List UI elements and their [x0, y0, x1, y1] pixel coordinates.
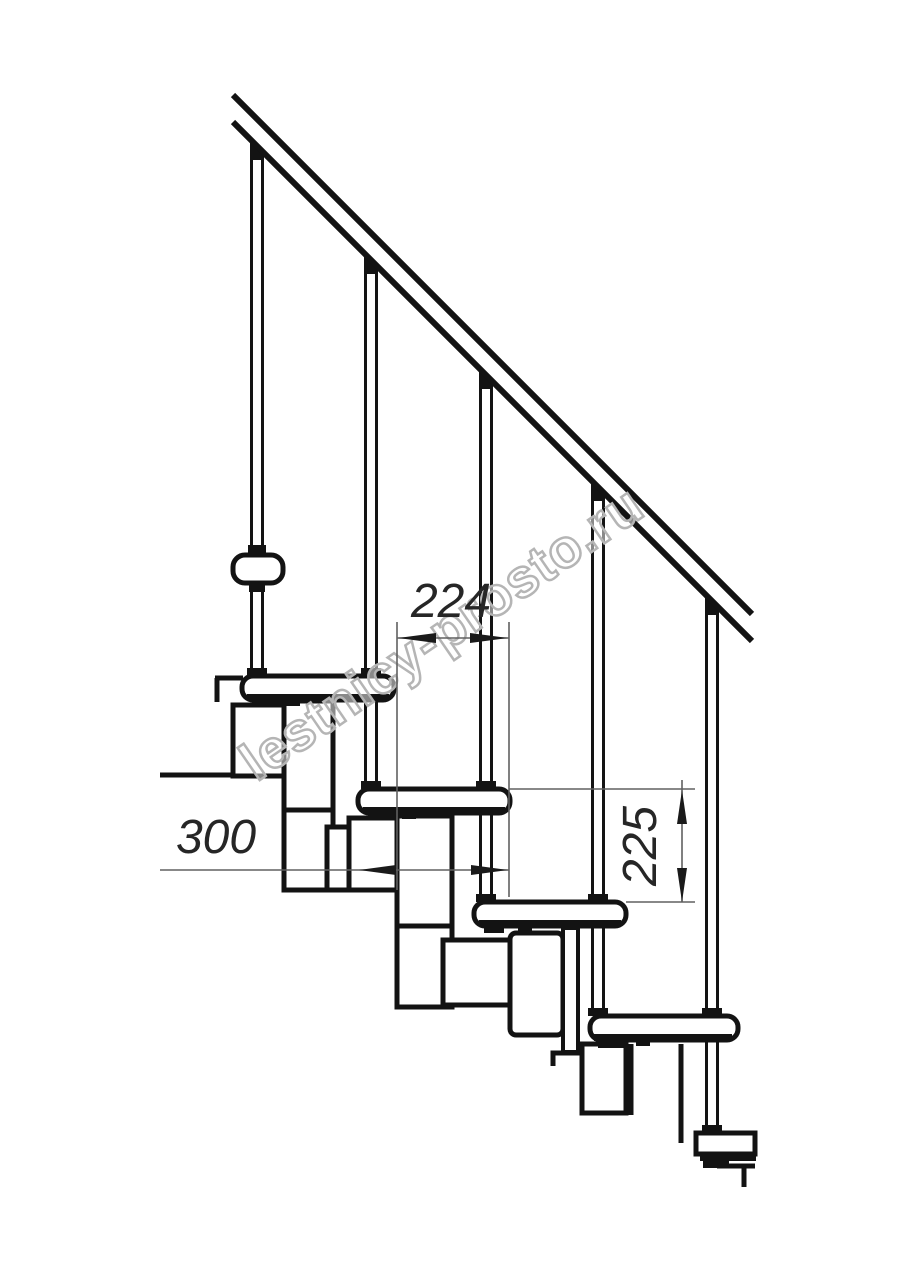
arrow-down	[677, 868, 687, 902]
baluster-1	[252, 158, 263, 676]
bottom-support-band	[700, 1152, 756, 1161]
module-2-body	[443, 940, 517, 1005]
baluster-5	[707, 613, 718, 1133]
module-4	[582, 1044, 681, 1143]
watermark: lestnicy-prosto.ru	[229, 474, 654, 792]
drawing-page: lestnicy-prosto.ru 224 300 225	[0, 0, 914, 1280]
baluster-5-foot	[702, 1125, 722, 1133]
wall-bracket-collar-top	[248, 545, 266, 555]
baluster-5-collar	[702, 1008, 722, 1016]
tread-4-underside	[594, 1034, 732, 1048]
wall-bracket	[233, 545, 283, 592]
dimension-step-run-label: 224	[410, 575, 491, 628]
module-3-tube	[563, 928, 578, 1052]
baluster-4	[593, 499, 604, 1016]
baluster-3	[481, 387, 492, 902]
dimension-step-rise-label: 225	[614, 806, 667, 887]
watermark-text: lestnicy-prosto.ru	[229, 474, 654, 792]
arrow-up	[677, 790, 687, 824]
landing-corner	[215, 678, 243, 702]
bottom-support-hook	[717, 1166, 755, 1187]
dimension-tread-depth-label: 300	[176, 811, 256, 864]
baluster-4-foot	[588, 1008, 608, 1016]
baluster-2-foot	[361, 781, 381, 789]
module-4-plate	[582, 1044, 626, 1113]
staircase-technical-drawing: lestnicy-prosto.ru 224 300 225	[0, 0, 914, 1280]
module-3-plate	[510, 933, 563, 1035]
bottom-support-block	[696, 1133, 755, 1154]
baluster-3-collar	[476, 781, 496, 789]
module-stringer	[233, 701, 756, 1187]
wall-bracket-body	[233, 555, 283, 583]
wall-bracket-collar-bottom	[249, 583, 265, 592]
baluster-3-foot	[476, 894, 496, 902]
baluster-4-collar	[588, 894, 608, 902]
bottom-support	[696, 1133, 756, 1187]
arrow-right	[471, 865, 508, 875]
baluster-1-foot	[247, 668, 267, 676]
